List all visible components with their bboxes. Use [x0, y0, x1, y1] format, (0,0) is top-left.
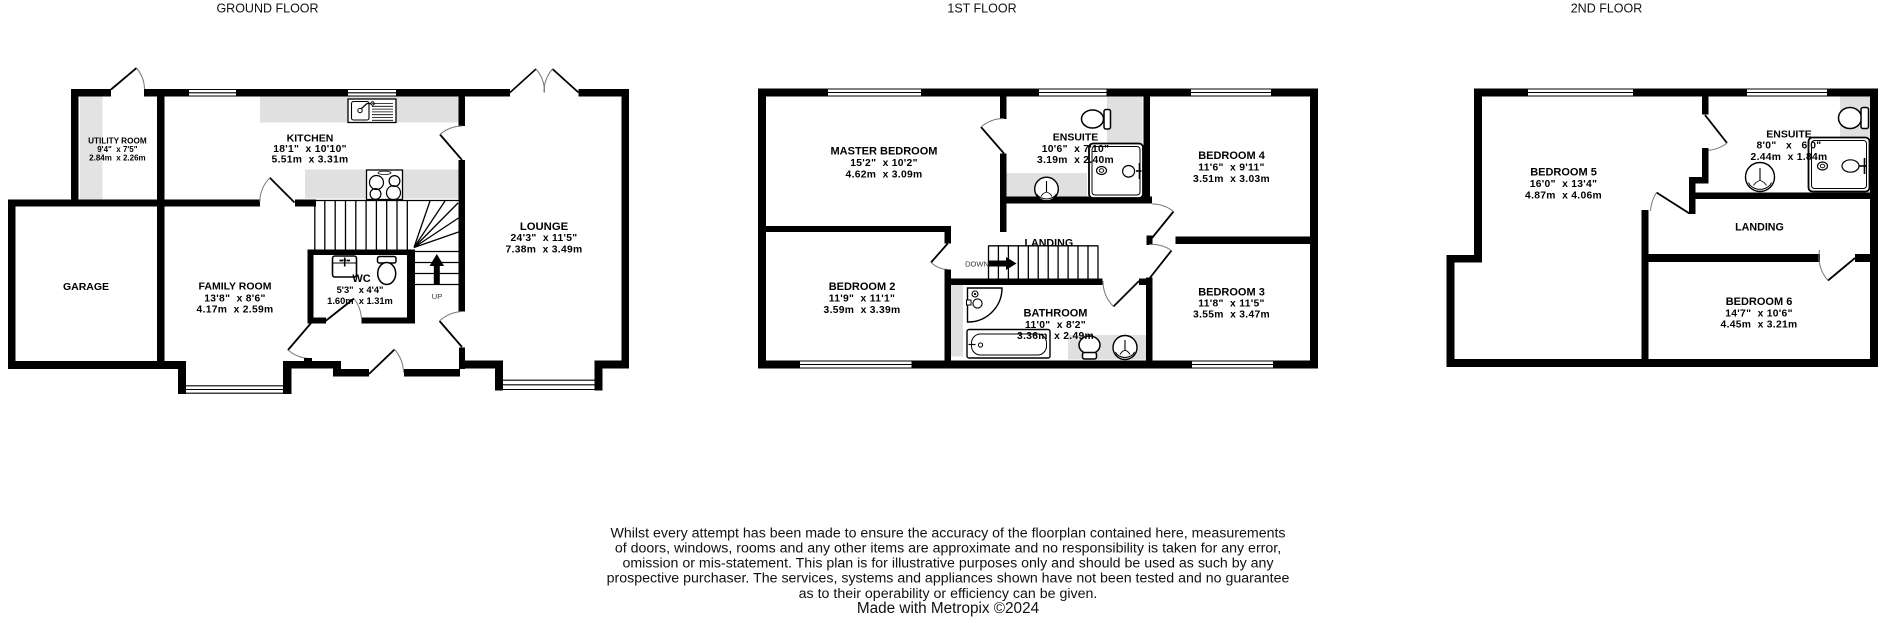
svg-text:ENSUITE: ENSUITE	[1766, 129, 1812, 141]
svg-text:GROUND FLOOR: GROUND FLOOR	[216, 2, 318, 16]
svg-text:11'0" x 8'2": 11'0" x 8'2"	[1025, 320, 1086, 331]
svg-text:2.84m x 2.26m: 2.84m x 2.26m	[89, 154, 145, 163]
svg-text:4.62m x 3.09m: 4.62m x 3.09m	[846, 169, 923, 180]
svg-text:1ST FLOOR: 1ST FLOOR	[947, 2, 1016, 16]
svg-text:4.17m x 2.59m: 4.17m x 2.59m	[197, 305, 274, 316]
svg-text:2ND FLOOR: 2ND FLOOR	[1571, 2, 1643, 16]
svg-text:15'2" x 10'2": 15'2" x 10'2"	[850, 158, 918, 169]
svg-text:of doors, windows, rooms and a: of doors, windows, rooms and any other i…	[615, 541, 1281, 557]
svg-text:KITCHEN: KITCHEN	[287, 133, 334, 145]
svg-text:9'4" x 7'5": 9'4" x 7'5"	[97, 145, 138, 154]
svg-text:8'0" x 6'0": 8'0" x 6'0"	[1757, 141, 1822, 152]
svg-text:LANDING: LANDING	[1024, 237, 1073, 249]
svg-text:4.87m x 4.06m: 4.87m x 4.06m	[1525, 190, 1602, 201]
svg-text:LANDING: LANDING	[1735, 222, 1784, 234]
svg-text:11'9" x 11'1": 11'9" x 11'1"	[829, 294, 895, 305]
svg-text:LOUNGE: LOUNGE	[520, 221, 569, 233]
svg-text:4.45m x 3.21m: 4.45m x 3.21m	[1721, 319, 1798, 330]
svg-text:omission or mis-statement. Thi: omission or mis-statement. This plan is …	[622, 556, 1274, 572]
svg-text:GARAGE: GARAGE	[63, 281, 109, 293]
svg-text:3.36m x 2.49m: 3.36m x 2.49m	[1017, 331, 1094, 342]
svg-text:5'3" x 4'4": 5'3" x 4'4"	[337, 285, 384, 295]
svg-text:3.19m x 2.40m: 3.19m x 2.40m	[1037, 155, 1114, 166]
svg-text:14'7" x 10'6": 14'7" x 10'6"	[1725, 308, 1793, 319]
svg-text:BATHROOM: BATHROOM	[1024, 308, 1088, 320]
svg-text:BEDROOM 6: BEDROOM 6	[1726, 296, 1793, 308]
svg-text:BEDROOM 2: BEDROOM 2	[829, 281, 896, 293]
svg-text:3.55m x 3.47m: 3.55m x 3.47m	[1193, 310, 1270, 321]
svg-text:Made with Metropix ©2024: Made with Metropix ©2024	[857, 600, 1040, 617]
svg-text:BEDROOM 5: BEDROOM 5	[1530, 167, 1597, 179]
svg-text:11'6" x 9'11": 11'6" x 9'11"	[1198, 163, 1264, 174]
svg-text:7.38m x 3.49m: 7.38m x 3.49m	[506, 245, 583, 256]
svg-text:24'3" x 11'5": 24'3" x 11'5"	[511, 233, 578, 244]
svg-text:18'1" x 10'10": 18'1" x 10'10"	[273, 144, 347, 155]
svg-text:UP: UP	[432, 292, 442, 301]
svg-text:DOWN: DOWN	[965, 260, 989, 269]
svg-text:5.51m x 3.31m: 5.51m x 3.31m	[272, 154, 349, 165]
svg-text:11'8" x 11'5": 11'8" x 11'5"	[1198, 299, 1264, 310]
svg-text:3.51m x 3.03m: 3.51m x 3.03m	[1193, 174, 1270, 185]
svg-text:3.59m x 3.39m: 3.59m x 3.39m	[824, 305, 901, 316]
svg-text:Whilst every attempt has been: Whilst every attempt has been made to en…	[610, 525, 1285, 541]
svg-text:prospective purchaser. The ser: prospective purchaser. The services, sys…	[607, 571, 1290, 587]
svg-text:13'8" x 8'6": 13'8" x 8'6"	[204, 294, 266, 305]
svg-text:10'6" x 7'10": 10'6" x 7'10"	[1042, 144, 1110, 155]
svg-text:2.44m x 1.84m: 2.44m x 1.84m	[1751, 152, 1828, 163]
svg-text:FAMILY ROOM: FAMILY ROOM	[199, 281, 272, 293]
svg-text:1.60m x 1.31m: 1.60m x 1.31m	[327, 296, 393, 306]
svg-text:MASTER BEDROOM: MASTER BEDROOM	[831, 146, 938, 158]
svg-text:16'0" x 13'4": 16'0" x 13'4"	[1530, 179, 1598, 190]
svg-text:BEDROOM 3: BEDROOM 3	[1198, 286, 1265, 298]
svg-text:ENSUITE: ENSUITE	[1053, 132, 1099, 144]
svg-text:WC: WC	[352, 273, 370, 285]
svg-text:BEDROOM 4: BEDROOM 4	[1198, 150, 1266, 162]
